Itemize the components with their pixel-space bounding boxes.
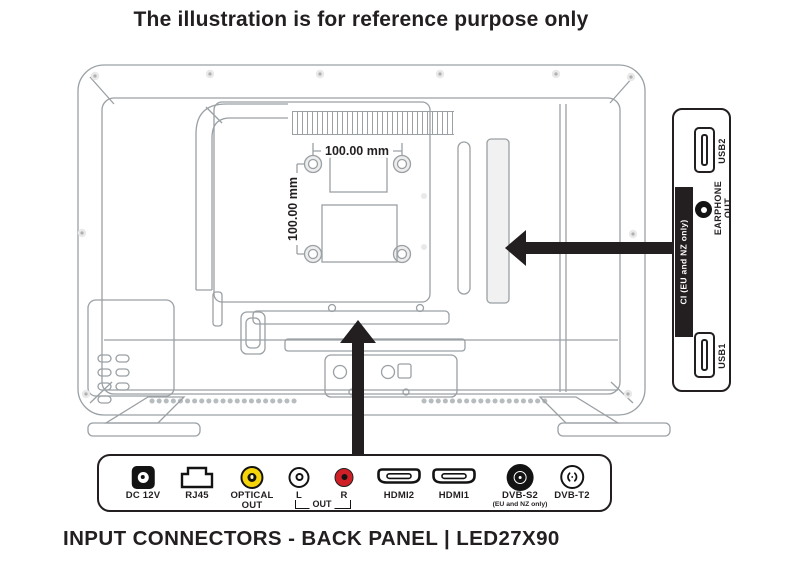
- earphone-hole: [701, 207, 707, 213]
- audio-left-connector: L: [289, 463, 310, 501]
- usb2-port-icon: [694, 127, 715, 173]
- usb-slot: [701, 339, 708, 371]
- dvb-s2-connector: DVB-S2 (EU and NZ only): [493, 463, 548, 508]
- earphone-jack-icon: [695, 201, 712, 218]
- hdmi-port-icon: [377, 468, 421, 487]
- dc-jack-icon: [132, 466, 155, 489]
- hdmi2-label: HDMI2: [384, 491, 415, 501]
- usb1-label: USB1: [718, 343, 728, 369]
- rca-jack-red-icon: [335, 468, 354, 487]
- optical-jack-icon: [241, 466, 264, 489]
- arrow-left-icon: [505, 230, 675, 266]
- rca-jack-white-icon: [289, 467, 310, 488]
- hdmi-port-icon: [432, 468, 476, 487]
- dvb-s2-sublabel: (EU and NZ only): [493, 501, 548, 508]
- earphone-out-label: EARPHONE OUT: [714, 181, 734, 235]
- usb2-label: USB2: [718, 138, 728, 164]
- dc-12v-label: DC 12V: [126, 491, 160, 501]
- rj45-label: RJ45: [185, 491, 209, 501]
- manual-page: The illustration is for reference purpos…: [0, 0, 800, 563]
- dc-12v-connector: DC 12V: [126, 463, 160, 501]
- coax-satellite-icon: [506, 464, 533, 491]
- ci-label: CI (EU and NZ only): [679, 219, 688, 304]
- optical-label-2: OUT: [242, 501, 263, 511]
- coax-antenna-icon: [560, 465, 584, 489]
- dvb-t2-connector: DVB-T2: [554, 463, 590, 501]
- hdmi2-connector: HDMI2: [377, 463, 421, 501]
- page-caption: INPUT CONNECTORS - BACK PANEL | LED27X90: [63, 527, 560, 551]
- hdmi1-connector: HDMI1: [432, 463, 476, 501]
- rj45-connector: RJ45: [180, 463, 214, 501]
- vesa-mount-group: [297, 143, 411, 263]
- vesa-width-label: 100.00 mm: [321, 145, 393, 158]
- dvb-s2-label: DVB-S2: [502, 491, 538, 501]
- usb1-port-icon: [694, 332, 715, 378]
- side-connector-panel: USB2 EARPHONE OUT CI (EU and NZ only) US…: [672, 108, 731, 392]
- rj45-port-icon: [180, 465, 214, 489]
- audio-out-label: OUT: [310, 499, 335, 509]
- dvb-t2-label: DVB-T2: [554, 491, 590, 501]
- optical-out-connector: OPTICAL OUT: [230, 463, 273, 512]
- audio-right-connector: R: [335, 463, 354, 501]
- vesa-height-label: 100.00 mm: [287, 173, 300, 245]
- bottom-connector-panel: DC 12V RJ45 OPTICAL OUT L R: [97, 454, 612, 512]
- usb-slot: [701, 134, 708, 166]
- arrow-up-icon: [340, 320, 376, 456]
- hdmi1-label: HDMI1: [439, 491, 470, 501]
